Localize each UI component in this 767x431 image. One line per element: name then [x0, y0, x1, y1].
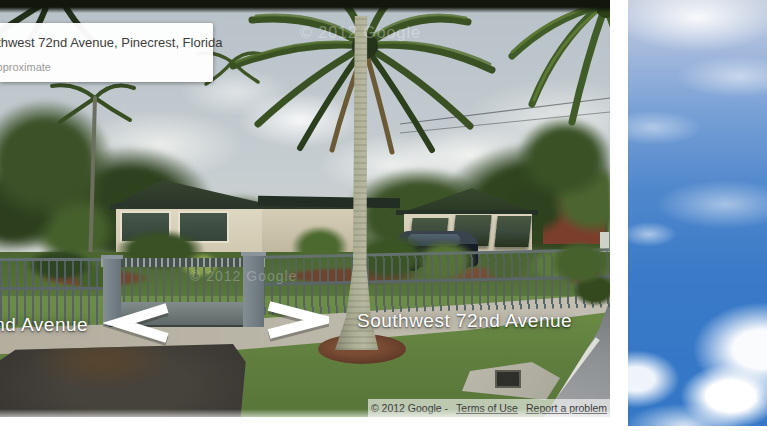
gate-pillar-cap — [101, 255, 123, 259]
street-label-left[interactable]: Southwest 72nd Avenue — [0, 314, 88, 336]
cloud-layer — [628, 0, 767, 426]
gate-pillar-cap — [241, 252, 266, 256]
google-watermark: © 2012 Google — [190, 268, 297, 284]
street-view-panorama[interactable]: © 2012 Google © 2012 Google Southwest 72… — [0, 0, 610, 417]
panorama-bottom-fade — [0, 409, 610, 431]
pano-top-vignette — [0, 0, 610, 13]
pano-navigation-arrows[interactable] — [103, 300, 329, 350]
utility-cover — [495, 370, 521, 388]
adjacent-sky-photo — [628, 0, 767, 426]
address-subtitle: Address is approximate — [0, 61, 51, 73]
gate-scroll-band — [101, 258, 265, 267]
fence-rail — [0, 287, 106, 290]
page: © 2012 Google © 2012 Google Southwest 72… — [0, 0, 767, 431]
street-label-right[interactable]: Southwest 72nd Avenue — [357, 310, 572, 332]
google-watermark: © 2012 Google — [300, 24, 421, 42]
right-hedge — [550, 238, 610, 310]
address-title: Southwest 72nd Avenue, Pinecrest, Florid… — [0, 35, 222, 50]
address-bubble: Southwest 72nd Avenue, Pinecrest, Florid… — [0, 23, 213, 82]
